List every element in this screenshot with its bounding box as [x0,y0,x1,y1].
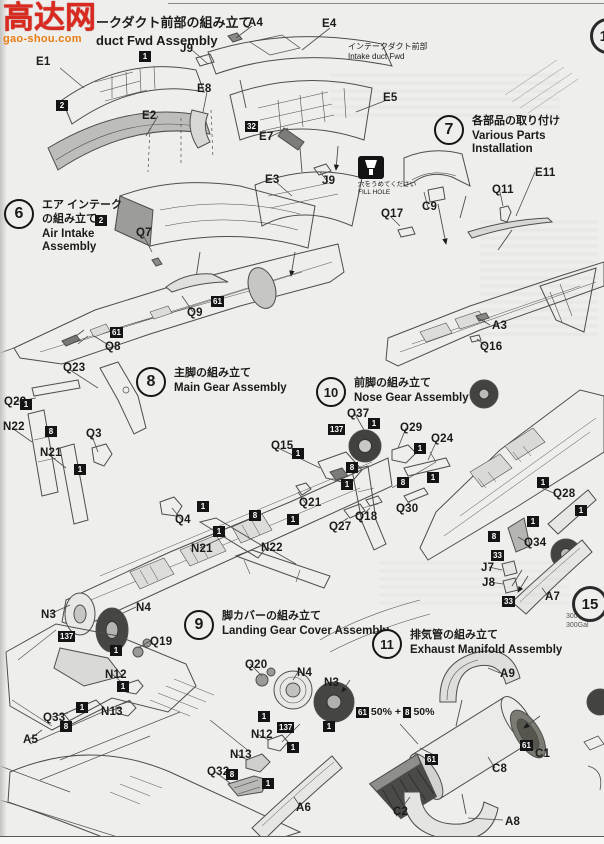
prev-step-title-jp: ークダクト前部の組み立て [96,12,251,31]
step-header-7: 7各部品の取り付けVarious Parts Installation [434,115,604,156]
paint-marker-1: 1 [414,443,426,454]
paint-marker-137: 137 [277,722,294,733]
part-label-q18: Q18 [355,511,377,523]
step-title-en: Various Parts Installation [472,130,604,156]
part-label-q30: Q30 [396,503,418,515]
part-label-q29: Q29 [400,422,422,434]
part-label-c2: C2 [393,806,408,818]
print-bleed-through [380,562,570,604]
part-label-a3: A3 [492,320,507,332]
part-label-e2: E2 [142,110,156,122]
step-title-en: Nose Gear Assembly [354,392,469,405]
part-label-q8: Q8 [105,341,121,353]
paint-marker-1: 1 [287,514,299,525]
paint-marker-1: 1 [76,702,88,713]
part-label-q4: Q4 [175,514,191,526]
part-label-q37: Q37 [347,408,369,420]
part-label-j8: J8 [482,577,495,589]
fill-hole-text: 穴をうめてくださいFILL HOLE [358,181,418,198]
paint-marker-1: 1 [527,516,539,527]
part-label-q28: Q28 [553,488,575,500]
paint-marker-1: 1 [139,51,151,62]
step-number-circle: 10 [316,377,346,407]
step-header-11: 11排気管の組み立てExhaust Manifold Assembly [372,629,562,659]
prev-step-title-en: duct Fwd Assembly [96,33,251,48]
part-label-n4: N4 [297,667,312,679]
next-section-margin [0,837,604,844]
part-label-n22: N22 [261,542,283,554]
part-label-a6: A6 [296,802,311,814]
paint-marker-33: 33 [502,596,515,607]
step-header-9: 9脚カバーの組み立てLanding Gear Cover Assembly [184,610,389,640]
part-label-j9: J9 [180,43,193,55]
part-label-e1: E1 [36,56,50,68]
paint-marker-61: 61 [425,754,438,765]
paint-marker-8: 8 [45,426,57,437]
part-label-c1: C1 [535,748,550,760]
step-title-en: Air Intake Assembly [42,228,122,254]
paint-marker-1: 1 [368,418,380,429]
part-label-j9: J9 [322,175,335,187]
paint-marker-137: 137 [58,631,75,642]
paint-marker-137: 137 [328,424,345,435]
step-number-circle: 11 [372,629,402,659]
fill-hole-jp: 穴をうめてください [358,181,416,188]
paint-marker-1: 1 [262,778,274,789]
step-title-en: Main Gear Assembly [174,382,287,395]
step-header-8: 8主脚の組み立てMain Gear Assembly [136,367,287,397]
paint-marker-1: 1 [575,505,587,516]
paint-marker-1: 1 [341,479,353,490]
section-divider-top [168,3,604,4]
paint-marker-8: 8 [397,477,409,488]
paint-marker-8: 8 [249,510,261,521]
fill-hole-note: 穴をうめてくださいFILL HOLE [358,156,418,198]
part-label-a4: A4 [248,17,263,29]
part-label-n21: N21 [40,447,62,459]
step-header-10: 10前脚の組み立てNose Gear Assembly [316,377,469,407]
step-number-circle: 8 [136,367,166,397]
paint-marker-1: 1 [20,399,32,410]
watermark-url: gao-shou.com [3,34,96,45]
part-label-q9: Q9 [187,307,203,319]
step-title-jp: 主脚の組み立て [174,367,287,381]
prev-step-header: ークダクト前部の組み立て duct Fwd Assembly [96,12,251,48]
part-label-e8: E8 [197,83,211,95]
watermark-text: 高达网 [3,2,96,33]
part-label-a8: A8 [505,816,520,828]
step-title-jp: 各部品の取り付け [472,115,604,129]
paint-marker-1: 1 [287,742,299,753]
part-label-q23: Q23 [63,362,85,374]
paint-marker-8: 8 [488,531,500,542]
intake-duct-note: インテークダクト前部 Intake duct Fwd [348,42,428,63]
part-label-e4: E4 [322,18,336,30]
part-label-q3: Q3 [86,428,102,440]
step-number-circle: 6 [4,199,34,229]
paint-marker-61: 61 [211,296,224,307]
step-title-en: Exhaust Manifold Assembly [410,644,562,657]
part-label-a7: A7 [545,591,560,603]
mix-text-1: 50% + [371,706,401,718]
step-title-jp: 排気管の組み立て [410,629,562,643]
part-label-q27: Q27 [329,521,351,533]
part-label-n12: N12 [105,669,127,681]
part-label-a9: A9 [500,668,515,680]
paint-marker-61: 61 [356,707,369,718]
part-label-q16: Q16 [480,341,502,353]
step-number-circle: 9 [184,610,214,640]
part-label-j7: J7 [481,562,494,574]
part-label-n12: N12 [251,729,273,741]
step-title-jp: 脚カバーの組み立て [222,610,389,624]
paint-marker-1: 1 [427,472,439,483]
paint-marker-8: 8 [60,721,72,732]
instruction-sheet-page: ークダクト前部の組み立て duct Fwd Assembly 高达网 gao-s… [0,0,604,844]
step-number-circle: 7 [434,115,464,145]
paint-marker-1: 1 [110,645,122,656]
paint-marker-2: 2 [56,100,68,111]
intake-duct-note-jp: インテークダクト前部 [348,42,428,52]
paint-mix-note: 61 50% + 8 50% [356,706,434,718]
part-label-q17: Q17 [381,208,403,220]
art-intake-duct-fwd [48,33,392,226]
paint-marker-1: 1 [74,464,86,475]
part-label-n13: N13 [101,706,123,718]
part-label-n3: N3 [324,677,339,689]
paint-marker-1: 1 [258,711,270,722]
part-label-n3: N3 [41,609,56,621]
print-bleed-through [480,215,598,335]
watermark-logo: 高达网 gao-shou.com [3,2,96,45]
paint-marker-1: 1 [197,501,209,512]
side-note-line2: 300Gal [566,621,589,630]
part-label-c8: C8 [492,763,507,775]
cutoff-step-number-15: 15 [572,586,604,622]
part-label-e11: E11 [535,167,555,179]
step-title-en: Landing Gear Cover Assembly [222,625,389,638]
part-label-q21: Q21 [299,497,321,509]
intake-duct-note-en: Intake duct Fwd [348,52,428,62]
part-label-c9: C9 [422,201,437,213]
paint-marker-1: 1 [537,477,549,488]
part-label-q15: Q15 [271,440,293,452]
step-title-jp: 前脚の組み立て [354,377,469,391]
part-label-n4: N4 [136,602,151,614]
paint-marker-8: 8 [403,707,411,718]
paint-marker-1: 1 [323,721,335,732]
paint-marker-1: 1 [213,526,225,537]
part-label-q20: Q20 [245,659,267,671]
part-label-e7: E7 [259,131,273,143]
paint-marker-8: 8 [226,769,238,780]
part-label-q19: Q19 [150,636,172,648]
paint-marker-1: 1 [292,448,304,459]
fill-hole-en: FILL HOLE [358,189,390,196]
part-label-q11: Q11 [492,184,514,196]
print-bleed-through [330,72,560,116]
part-label-e5: E5 [383,92,397,104]
fill-hole-icon [358,156,384,179]
paint-marker-1: 1 [117,681,129,692]
part-label-q24: Q24 [431,433,453,445]
paint-marker-61: 61 [110,327,123,338]
part-label-a5: A5 [23,734,38,746]
part-label-q7: Q7 [136,227,152,239]
paint-marker-8: 8 [346,462,358,473]
step-header-6: 6エア インテーク の組み立てAir Intake Assembly [4,199,122,254]
paint-marker-32: 32 [245,121,258,132]
paint-marker-33: 33 [491,550,504,561]
part-label-e3: E3 [265,174,279,186]
part-label-q34: Q34 [524,537,546,549]
paint-marker-61: 61 [520,740,533,751]
part-label-n13: N13 [230,749,252,761]
step-title-jp: エア インテーク の組み立て [42,199,122,227]
mix-text-2: 50% [413,706,434,718]
part-label-n22: N22 [3,421,25,433]
part-label-n21: N21 [191,543,213,555]
